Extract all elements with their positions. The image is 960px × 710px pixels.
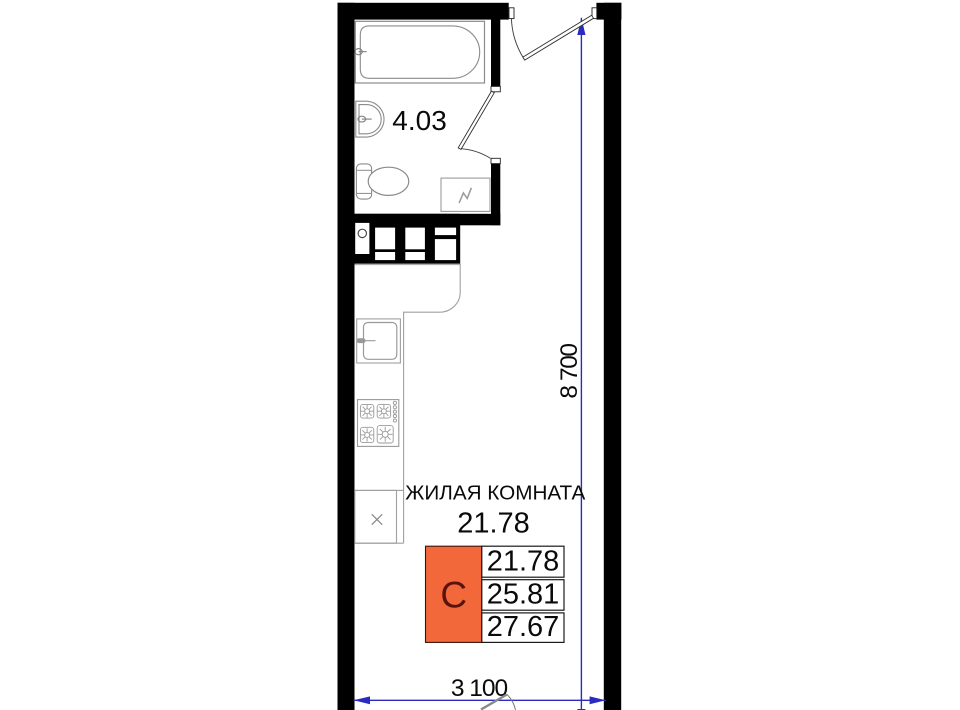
svg-text:8 700: 8 700 xyxy=(556,344,583,399)
svg-text:27.67: 27.67 xyxy=(487,611,560,643)
svg-text:21.78: 21.78 xyxy=(487,545,560,577)
svg-text:21.78: 21.78 xyxy=(457,507,530,539)
svg-text:С: С xyxy=(440,574,467,615)
svg-text:4.03: 4.03 xyxy=(392,105,447,136)
svg-text:ЖИЛАЯ КОМНАТА: ЖИЛАЯ КОМНАТА xyxy=(405,482,585,505)
svg-text:25.81: 25.81 xyxy=(487,578,560,610)
